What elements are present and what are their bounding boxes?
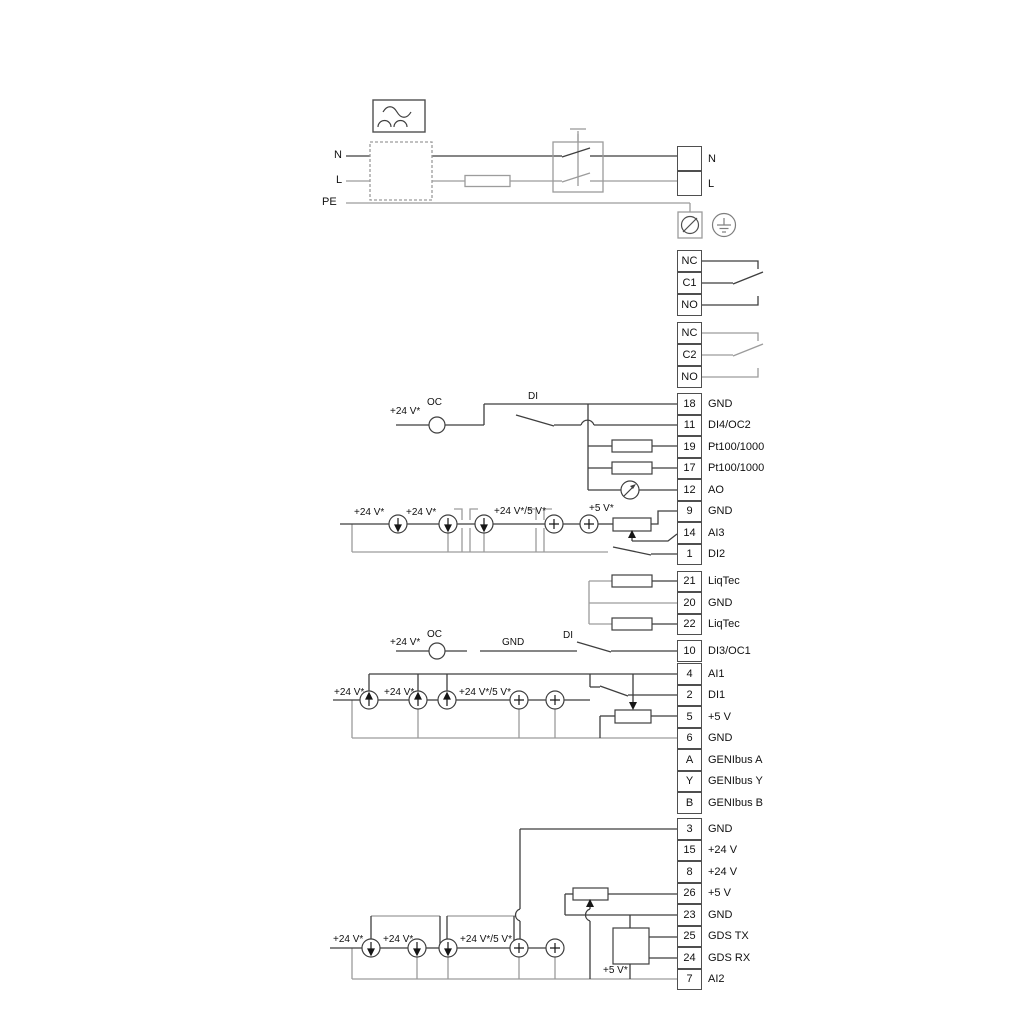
wiring-diagram-page: N L PE +24 V* OC DI +24 V* +24 V* +24 V*… — [0, 0, 1024, 1024]
terminal-cell-11: 11 — [677, 415, 702, 437]
terminal-cell-22: 22 — [677, 614, 702, 636]
terminal-label-7: AI2 — [708, 969, 725, 991]
terminal-cell-NC: NC — [677, 250, 702, 272]
liqtec-resistor-1 — [612, 575, 652, 587]
terminal-label-3: GND — [708, 818, 732, 840]
annotation-24v: +24 V* — [390, 406, 420, 417]
terminal-label-Y: GENIbus Y — [708, 771, 763, 793]
potentiometer-ai2 — [573, 888, 608, 900]
terminal-cell-10: 10 — [677, 640, 702, 662]
annotation-oc: OC — [427, 629, 442, 640]
terminal-label-21: LiqTec — [708, 571, 740, 593]
terminal-cell-mains-output-terminals-0 — [677, 146, 702, 171]
terminal-cell-20: 20 — [677, 592, 702, 614]
terminal-label-18: GND — [708, 393, 732, 415]
terminal-cell-19: 19 — [677, 436, 702, 458]
terminal-cell-25: 25 — [677, 926, 702, 948]
annotation-di: DI — [528, 391, 538, 402]
terminal-cell-NC: NC — [677, 322, 702, 344]
terminal-cell-NO: NO — [677, 294, 702, 316]
terminal-cell-21: 21 — [677, 571, 702, 593]
terminal-label-26: +5 V — [708, 883, 731, 905]
mains-pe-label: PE — [322, 196, 337, 208]
current-source-up-icon — [438, 691, 456, 709]
terminal-label-10: DI3/OC1 — [708, 640, 751, 662]
terminal-label-15: +24 V — [708, 840, 737, 862]
terminal-label-11: DI4/OC2 — [708, 415, 751, 437]
annotation-24v: +24 V* — [384, 687, 414, 698]
current-source-down-icon — [439, 515, 457, 533]
terminal-cell-5: 5 — [677, 706, 702, 728]
terminal-cell-12: 12 — [677, 479, 702, 501]
earth-symbol — [713, 214, 736, 237]
annotation-24v: +24 V* — [334, 687, 364, 698]
terminal-label-24: GDS RX — [708, 947, 750, 969]
liqtec-resistor-2 — [612, 618, 652, 630]
plus-source-icon — [545, 515, 563, 533]
terminal-label-9: GND — [708, 501, 732, 523]
ac-supply-symbol-box — [373, 100, 425, 132]
terminal-label-17: Pt100/1000 — [708, 458, 764, 480]
terminal-label-mains-output-terminals: N — [708, 146, 716, 171]
open-collector-icon — [429, 643, 445, 659]
terminal-cell-mains-output-terminals-1 — [677, 171, 702, 196]
fuse-symbol — [465, 176, 510, 187]
mains-l-label: L — [336, 174, 342, 186]
terminal-label-14: AI3 — [708, 522, 725, 544]
annotation-24v-5v: +24 V*/5 V* — [494, 506, 546, 517]
open-collector-icon — [429, 417, 445, 433]
annotation-gnd: GND — [502, 637, 524, 648]
terminal-label-8: +24 V — [708, 861, 737, 883]
terminal-cell-8: 8 — [677, 861, 702, 883]
terminal-label-22: LiqTec — [708, 614, 740, 636]
annotation-24v: +24 V* — [406, 507, 436, 518]
plus-source-icon — [510, 939, 528, 957]
terminal-cell-6: 6 — [677, 728, 702, 750]
annotation-24v: +24 V* — [354, 507, 384, 518]
pt100-resistor-2 — [612, 462, 652, 474]
emc-filter-box — [370, 142, 432, 200]
terminal-cell-B: B — [677, 792, 702, 814]
terminal-label-12: AO — [708, 479, 724, 501]
terminal-cell-15: 15 — [677, 840, 702, 862]
terminal-label-2: DI1 — [708, 685, 725, 707]
current-source-down-icon — [362, 939, 380, 957]
terminal-cell-14: 14 — [677, 522, 702, 544]
terminal-label-23: GND — [708, 904, 732, 926]
terminal-cell-7: 7 — [677, 969, 702, 991]
potentiometer-ai3 — [613, 518, 651, 531]
terminal-cell-4: 4 — [677, 663, 702, 685]
terminal-label-5: +5 V — [708, 706, 731, 728]
potentiometer-ai1 — [615, 710, 651, 723]
current-source-down-icon — [475, 515, 493, 533]
terminal-cell-2: 2 — [677, 685, 702, 707]
gds-sensor-box — [613, 928, 649, 964]
terminal-cell-1: 1 — [677, 544, 702, 566]
terminal-label-4: AI1 — [708, 663, 725, 685]
terminal-label-mains-output-terminals: L — [708, 171, 714, 196]
pt100-resistor-1 — [612, 440, 652, 452]
terminal-label-A: GENIbus A — [708, 749, 762, 771]
terminal-cell-17: 17 — [677, 458, 702, 480]
ao-meter-icon — [621, 481, 639, 499]
terminal-label-6: GND — [708, 728, 732, 750]
annotation-oc: OC — [427, 397, 442, 408]
terminal-cell-18: 18 — [677, 393, 702, 415]
terminal-cell-NO: NO — [677, 366, 702, 388]
terminal-cell-3: 3 — [677, 818, 702, 840]
annotation-24v-5v: +24 V*/5 V* — [459, 687, 511, 698]
terminal-cell-A: A — [677, 749, 702, 771]
terminal-label-20: GND — [708, 592, 732, 614]
annotation-24v: +24 V* — [383, 934, 413, 945]
terminal-cell-C2: C2 — [677, 344, 702, 366]
annotation-5v: +5 V* — [589, 503, 614, 514]
terminal-cell-C1: C1 — [677, 272, 702, 294]
terminal-cell-Y: Y — [677, 771, 702, 793]
annotation-24v: +24 V* — [390, 637, 420, 648]
current-source-down-icon — [439, 939, 457, 957]
annotation-24v: +24 V* — [333, 934, 363, 945]
terminal-label-25: GDS TX — [708, 926, 749, 948]
mains-n-label: N — [334, 149, 342, 161]
current-source-down-icon — [389, 515, 407, 533]
annotation-di: DI — [563, 630, 573, 641]
terminal-label-1: DI2 — [708, 544, 725, 566]
plus-source-icon — [510, 691, 528, 709]
plus-source-icon — [546, 691, 564, 709]
annotation-5v: +5 V* — [603, 965, 628, 976]
plus-source-icon — [580, 515, 598, 533]
annotation-24v-5v: +24 V*/5 V* — [460, 934, 512, 945]
terminal-cell-24: 24 — [677, 947, 702, 969]
terminal-cell-26: 26 — [677, 883, 702, 905]
plus-source-icon — [546, 939, 564, 957]
terminal-label-B: GENIbus B — [708, 792, 763, 814]
terminal-cell-23: 23 — [677, 904, 702, 926]
terminal-label-19: Pt100/1000 — [708, 436, 764, 458]
terminal-cell-9: 9 — [677, 501, 702, 523]
